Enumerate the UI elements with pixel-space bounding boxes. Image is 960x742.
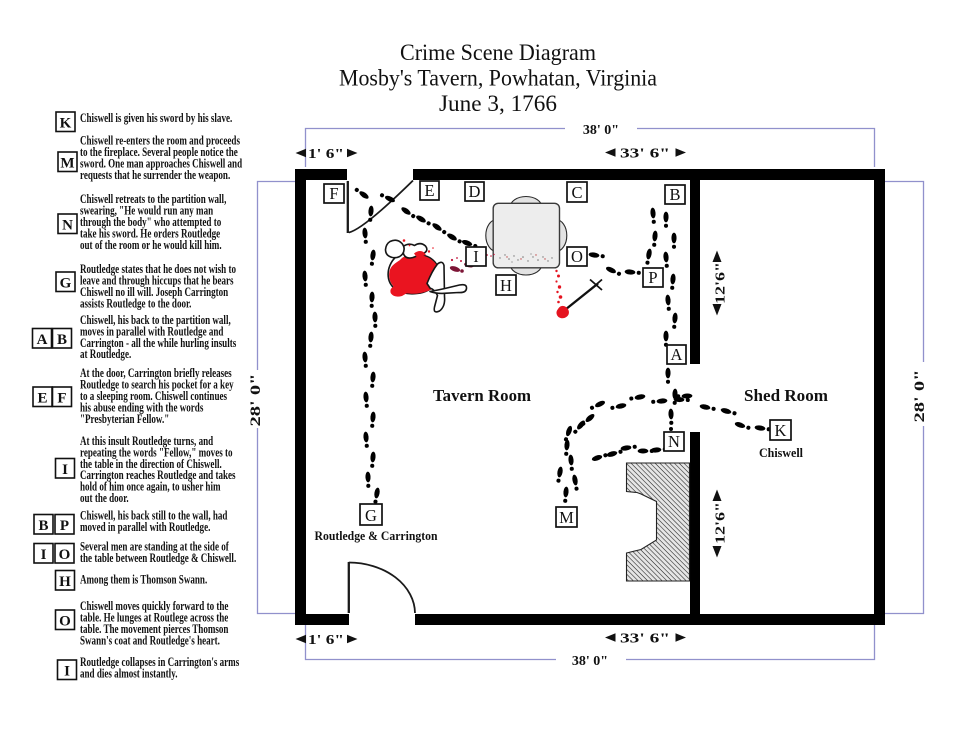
svg-text:and dies almost instantly.: and dies almost instantly.: [80, 667, 178, 681]
svg-text:assists Routledge to the door.: assists Routledge to the door.: [80, 297, 192, 311]
svg-text:28' 0": 28' 0": [912, 370, 928, 423]
svg-text:P: P: [648, 268, 657, 287]
svg-text:Swann's coat and Routledge's h: Swann's coat and Routledge's heart.: [80, 634, 220, 648]
svg-text:E: E: [424, 181, 434, 200]
svg-text:33' 6": 33' 6": [620, 631, 670, 646]
svg-text:B: B: [38, 518, 48, 534]
svg-text:at Routledge.: at Routledge.: [80, 348, 131, 362]
svg-text:G: G: [365, 506, 377, 525]
svg-text:38' 0": 38' 0": [572, 654, 608, 669]
svg-text:Routledge & Carrington: Routledge & Carrington: [315, 528, 439, 543]
svg-text:G: G: [60, 275, 72, 291]
svg-text:A: A: [37, 332, 48, 348]
svg-text:O: O: [571, 247, 583, 266]
svg-text:I: I: [64, 663, 70, 679]
svg-text:I: I: [473, 247, 479, 266]
svg-text:out of the room or he would ki: out of the room or he would kill him.: [80, 239, 222, 253]
svg-text:F: F: [329, 184, 338, 203]
svg-text:I: I: [41, 547, 47, 563]
svg-text:38' 0": 38' 0": [583, 123, 619, 138]
svg-text:I: I: [62, 462, 68, 478]
svg-text:B: B: [669, 185, 680, 204]
svg-text:12'6": 12'6": [713, 262, 728, 304]
svg-text:out the door.: out the door.: [80, 492, 129, 506]
svg-text:H: H: [59, 574, 71, 590]
svg-text:1' 6": 1' 6": [308, 146, 344, 161]
svg-text:Chiswell is given his sword by: Chiswell is given his sword by his slave…: [80, 112, 232, 126]
svg-text:requests that he surrender the: requests that he surrender the weapon.: [80, 169, 230, 183]
svg-text:28' 0": 28' 0": [248, 374, 264, 427]
svg-text:F: F: [57, 390, 66, 406]
svg-text:K: K: [60, 115, 72, 131]
svg-text:Shed Room: Shed Room: [744, 386, 828, 405]
svg-text:Mosby's Tavern, Powhatan, Virg: Mosby's Tavern, Powhatan, Virginia: [339, 66, 658, 92]
svg-text:1' 6": 1' 6": [308, 632, 344, 647]
svg-text:C: C: [571, 183, 582, 202]
svg-text:O: O: [59, 547, 71, 563]
svg-text:33' 6": 33' 6": [620, 146, 670, 161]
svg-text:12'6": 12'6": [713, 502, 728, 544]
svg-text:P: P: [60, 518, 69, 534]
svg-text:Tavern Room: Tavern Room: [433, 386, 531, 405]
svg-text:E: E: [37, 390, 47, 406]
svg-text:Chiswell: Chiswell: [759, 445, 803, 460]
svg-text:"Presbyterian Fellow.": "Presbyterian Fellow.": [80, 413, 169, 427]
svg-text:O: O: [59, 613, 71, 629]
svg-text:the table between Routledge &: the table between Routledge & Chiswell.: [80, 552, 236, 566]
svg-text:B: B: [57, 332, 67, 348]
svg-text:Among them is Thomson Swann.: Among them is Thomson Swann.: [80, 573, 207, 587]
svg-text:moved in parallel with Routled: moved in parallel with Routledge.: [80, 521, 211, 535]
svg-text:Crime Scene Diagram: Crime Scene Diagram: [400, 40, 596, 66]
svg-text:June 3, 1766: June 3, 1766: [439, 91, 557, 117]
svg-text:H: H: [500, 276, 512, 295]
svg-text:N: N: [668, 432, 680, 451]
svg-text:M: M: [60, 155, 74, 171]
svg-text:D: D: [469, 182, 481, 201]
svg-text:K: K: [775, 421, 787, 440]
svg-text:M: M: [559, 508, 574, 527]
svg-text:A: A: [671, 345, 683, 364]
svg-text:N: N: [62, 217, 73, 233]
